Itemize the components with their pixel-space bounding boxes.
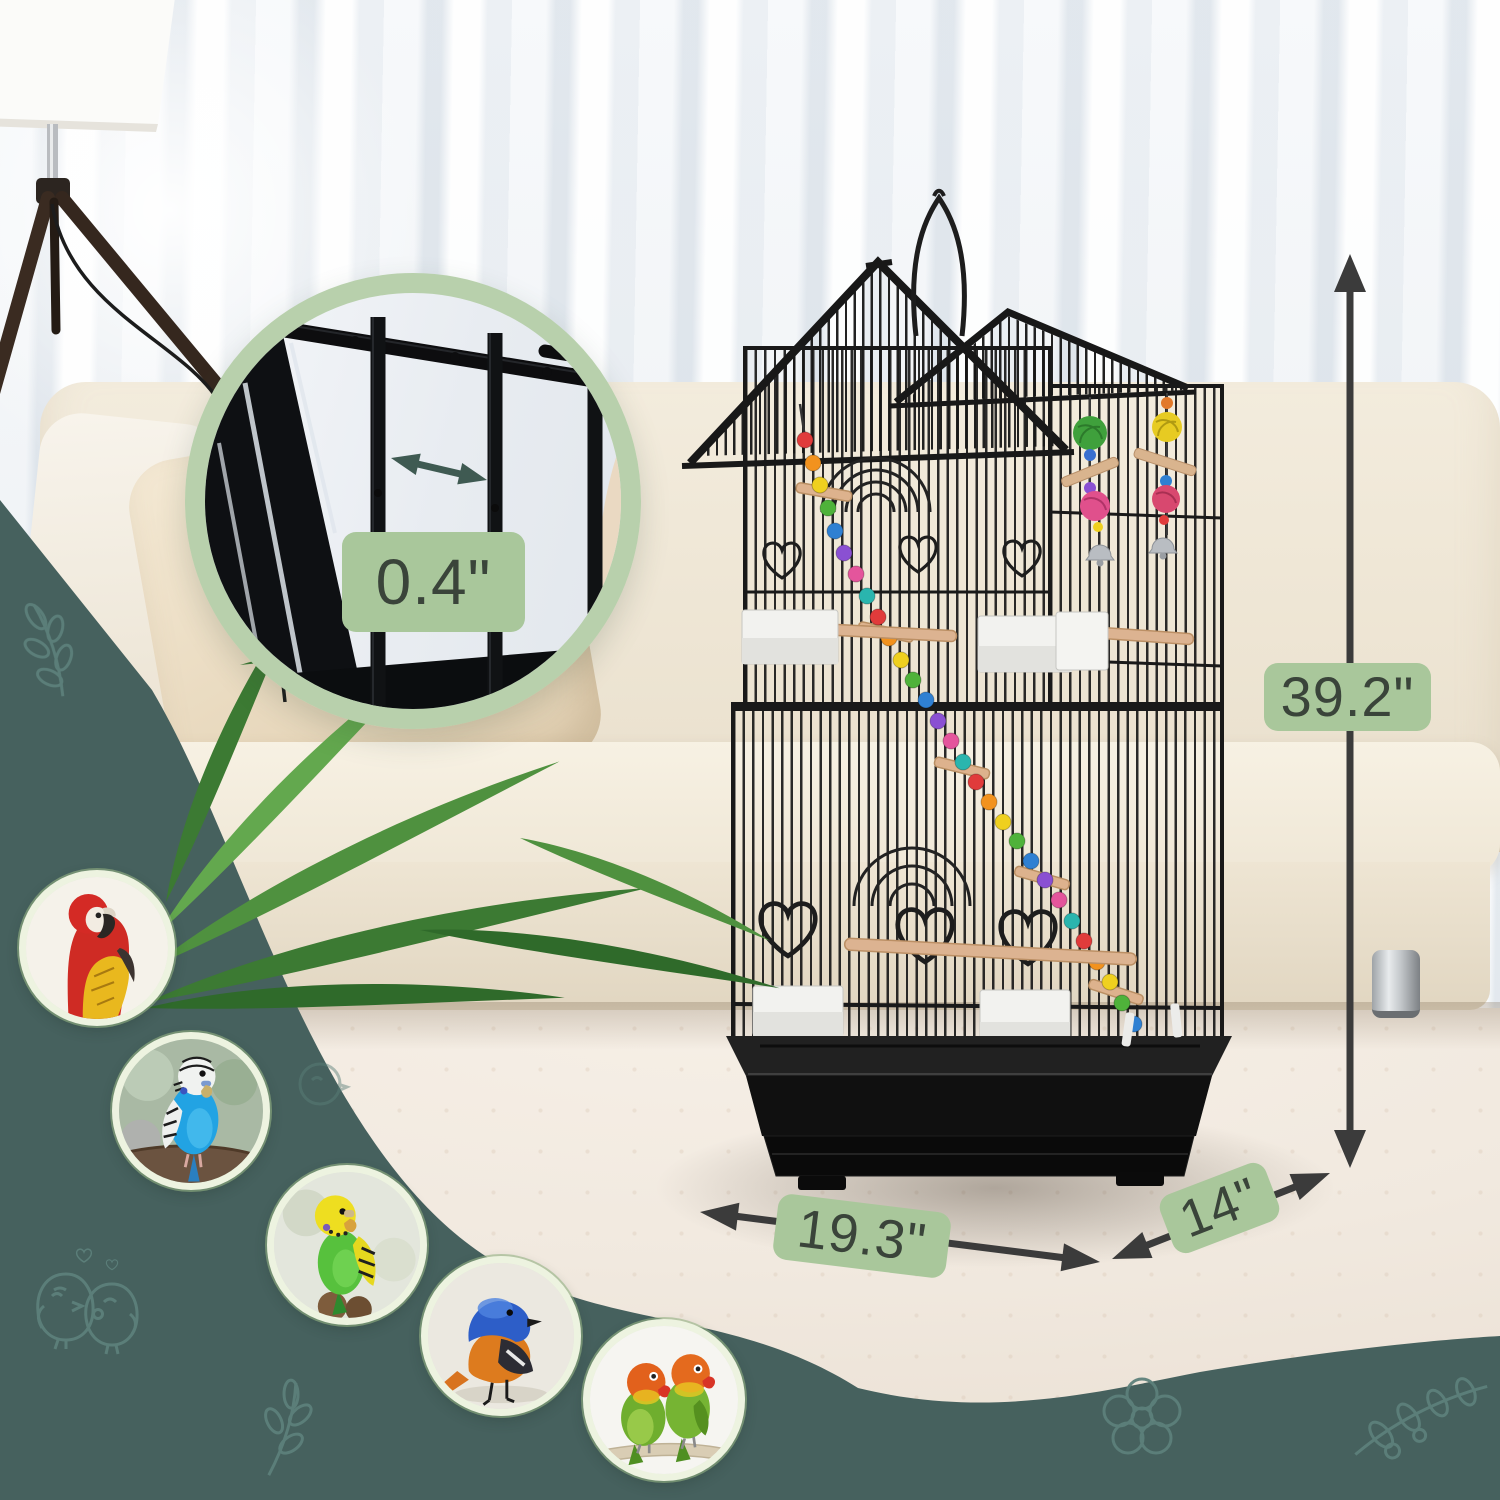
dimension-arrows (0, 0, 1500, 1500)
height-dimension-label: 39.2" (1264, 663, 1431, 731)
product-image: 0.4" 39.2" 19.3" 14" (0, 0, 1500, 1500)
